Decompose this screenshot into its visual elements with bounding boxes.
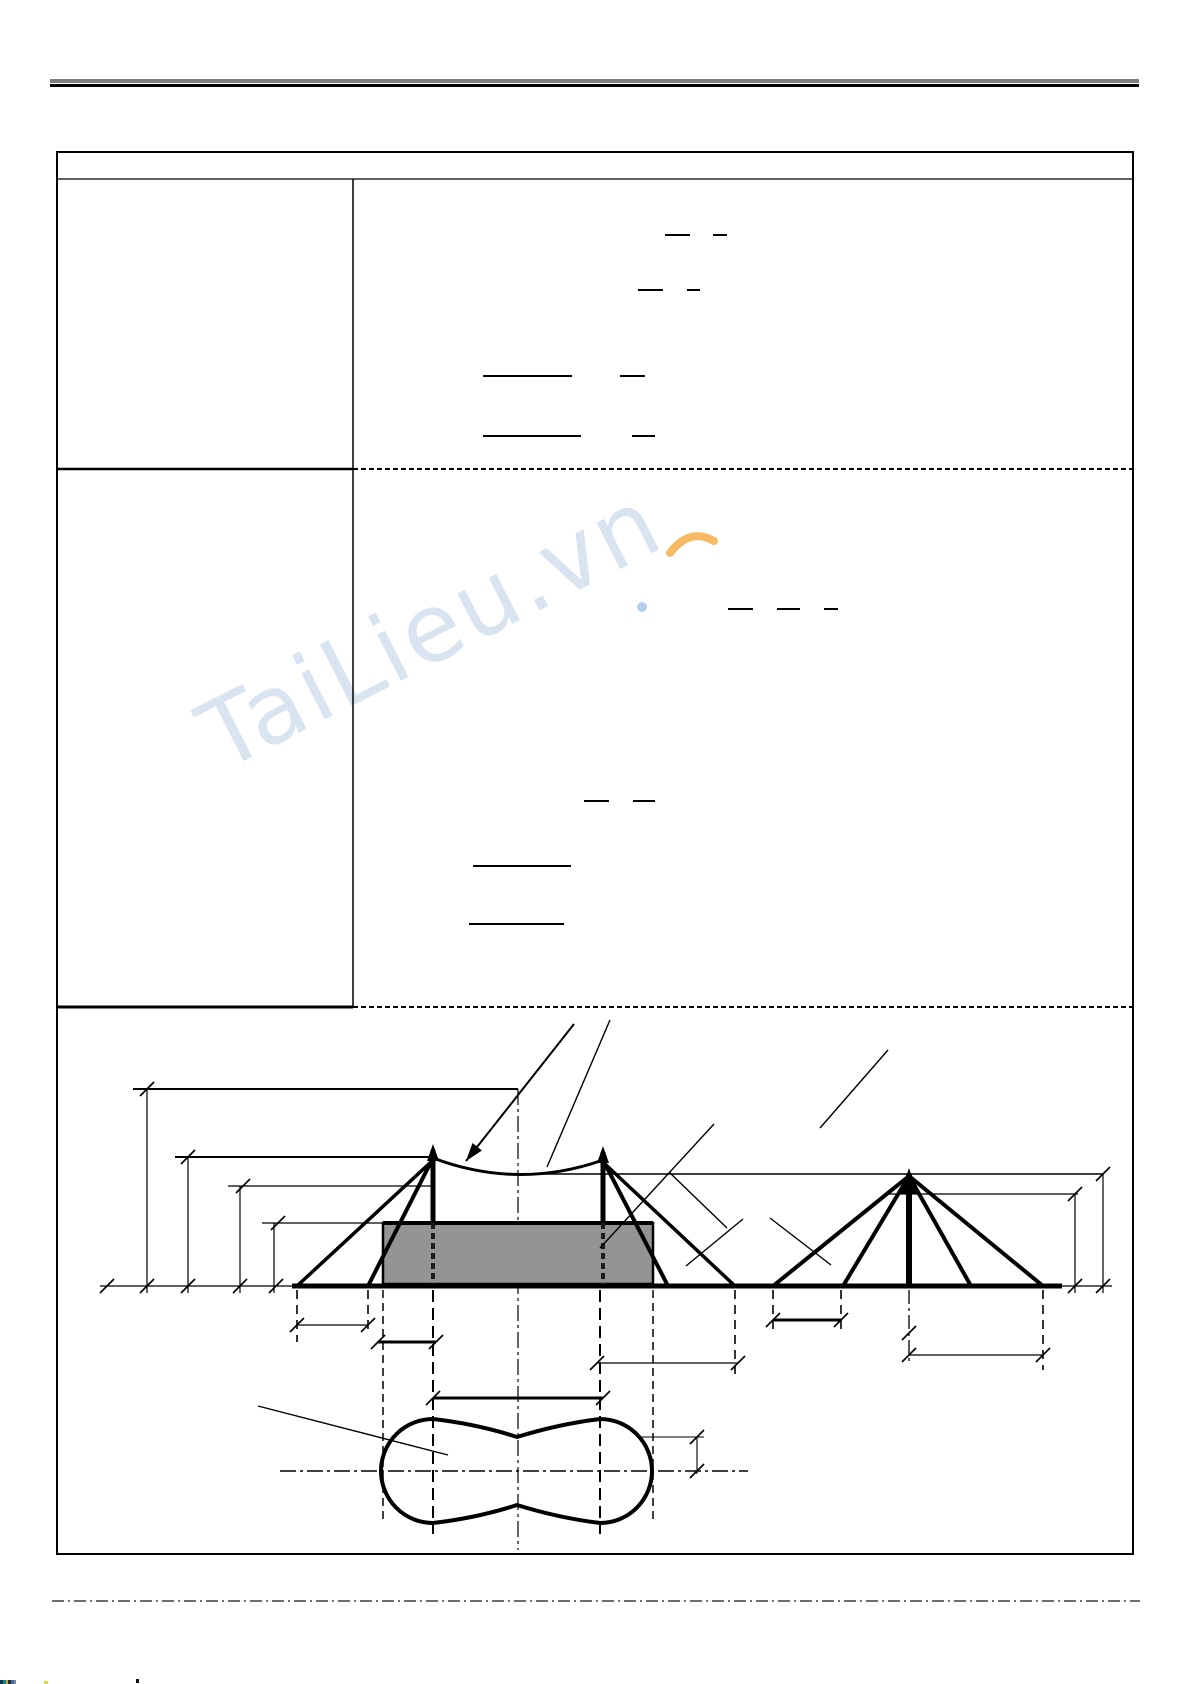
watermark-dot-icon bbox=[637, 602, 647, 612]
height-dimension-horizontals bbox=[133, 1089, 518, 1223]
plan-dimension-rows bbox=[297, 1320, 1043, 1398]
extension-lines bbox=[297, 1290, 1043, 1534]
top-rule-black-bar bbox=[50, 84, 1139, 87]
watermark-swoosh-icon bbox=[670, 536, 714, 553]
watermark: TaiLieu.vn bbox=[182, 467, 714, 793]
tent-end-view bbox=[773, 1168, 1043, 1286]
worksheet-table bbox=[57, 152, 1133, 1554]
leader-line bbox=[669, 1172, 727, 1228]
scanned-document-page: TaiLieu.vn bbox=[0, 0, 1192, 1684]
top-rule-gray-bar bbox=[50, 79, 1139, 83]
table-outer-border bbox=[57, 152, 1133, 1554]
leader-line bbox=[770, 1218, 831, 1265]
leader-line bbox=[547, 1020, 610, 1167]
inner-tent-block bbox=[383, 1223, 653, 1284]
leader-line bbox=[686, 1219, 743, 1266]
leader-line-plan bbox=[258, 1406, 448, 1455]
height-dimension-lines bbox=[147, 1089, 274, 1293]
plan-view-footprint bbox=[280, 1419, 748, 1523]
top-rule bbox=[50, 79, 1139, 87]
watermark-text: TaiLieu.vn bbox=[182, 467, 680, 793]
page-edge-artifact bbox=[0, 1679, 139, 1684]
tent-figure bbox=[100, 1020, 1112, 1550]
leader-line bbox=[820, 1050, 888, 1128]
leader-arrowhead-icon bbox=[466, 1143, 482, 1161]
